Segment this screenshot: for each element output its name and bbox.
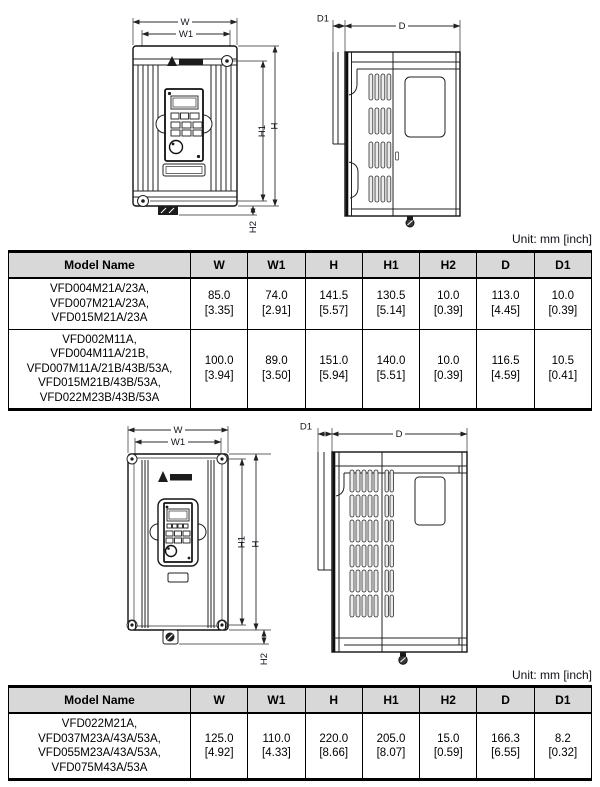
mounting-hole: [217, 454, 227, 464]
column-header-w: W: [191, 687, 248, 714]
column-header-model-name: Model Name: [9, 252, 191, 279]
unit-label: Unit: mm [inch]: [512, 668, 592, 682]
dimension-cell: 10.0[0.39]: [420, 329, 477, 410]
column-header-w1: W1: [248, 687, 305, 714]
dimension-cell: 220.0[8.66]: [305, 713, 362, 780]
column-header-model-name: Model Name: [9, 687, 191, 714]
large-frame-side-view-drawing: D1 D: [298, 420, 498, 675]
model-name-cell: VFD004M21A/23A, VFD007M21A/23A, VFD015M2…: [9, 278, 191, 329]
dimension-table-large-frames: Model Name W W1 H H1 H2 D D1 VFD022M21A,…: [8, 685, 592, 781]
terminal-cover: [168, 573, 188, 582]
model-line: VFD055M23A/43A/53A,: [11, 746, 188, 761]
h2-dimension: H2: [179, 206, 259, 233]
bottom-tab: [158, 206, 178, 215]
value-mm: 125.0: [193, 732, 245, 747]
keypad: [156, 89, 212, 161]
column-header-d: D: [477, 252, 534, 279]
value-inch: [3.94]: [193, 369, 245, 384]
small-frame-front-view-drawing: W W1: [126, 12, 286, 244]
value-inch: [4.92]: [193, 746, 245, 761]
manual-page: W W1: [0, 0, 600, 787]
h2-dimension-label: H2: [248, 221, 259, 233]
model-line: VFD075M43A/53A: [11, 761, 188, 776]
value-mm: 110.0: [250, 732, 302, 747]
h-dimension-label: H: [251, 540, 262, 547]
bottom-screw: [399, 652, 407, 664]
value-mm: 141.5: [308, 289, 360, 304]
d-dimension-label: D: [399, 21, 406, 32]
value-inch: [0.32]: [537, 746, 589, 761]
dimension-cell: 151.0[5.94]: [305, 329, 362, 410]
column-header-d1: D1: [534, 687, 591, 714]
table-row: VFD022M21A, VFD037M23A/43A/53A, VFD055M2…: [9, 713, 592, 780]
keypad-knob: [170, 141, 183, 154]
h2-dimension-label: H2: [259, 653, 270, 665]
h1-dimension-label: H1: [257, 125, 268, 137]
mounting-hole: [222, 56, 233, 67]
value-inch: [4.45]: [479, 304, 531, 319]
value-mm: 113.0: [479, 289, 531, 304]
column-header-d1: D1: [534, 252, 591, 279]
w1-dimension-label: W1: [171, 437, 185, 448]
table-header-row: Model Name W W1 H H1 H2 D D1: [9, 252, 592, 279]
value-inch: [3.50]: [250, 369, 302, 384]
value-inch: [5.94]: [308, 369, 360, 384]
drive-body: [133, 46, 237, 215]
value-inch: [0.39]: [537, 304, 589, 319]
dimension-cell: 10.5[0.41]: [534, 329, 591, 410]
value-mm: 130.5: [365, 289, 417, 304]
value-inch: [0.41]: [537, 369, 589, 384]
mounting-hole: [138, 196, 149, 207]
w-dimension-label: W: [174, 425, 183, 436]
column-header-h1: H1: [362, 687, 419, 714]
column-header-w: W: [191, 252, 248, 279]
d1-dimension: D1: [299, 421, 332, 452]
d-dimension-label: D: [396, 429, 403, 440]
drive-body: [318, 452, 467, 664]
model-line: VFD015M21B/43B/53A,: [11, 376, 188, 391]
value-inch: [5.14]: [365, 304, 417, 319]
model-line: VFD022M23B/43B/53A: [11, 391, 188, 406]
value-mm: 10.0: [537, 289, 589, 304]
column-header-h: H: [305, 252, 362, 279]
value-mm: 10.5: [537, 354, 589, 369]
value-inch: [8.07]: [365, 746, 417, 761]
dimension-cell: 110.0[4.33]: [248, 713, 305, 780]
d1-dimension-label: D1: [300, 422, 312, 433]
dimension-cell: 100.0[3.94]: [191, 329, 248, 410]
value-mm: 220.0: [308, 732, 360, 747]
value-mm: 15.0: [422, 732, 474, 747]
table-header-row: Model Name W W1 H H1 H2 D D1: [9, 687, 592, 714]
model-line: VFD007M11A/21B/43B/53A,: [11, 362, 188, 377]
column-header-h2: H2: [420, 252, 477, 279]
value-inch: [4.33]: [250, 746, 302, 761]
column-header-h1: H1: [362, 252, 419, 279]
model-line: VFD002M11A,: [11, 333, 188, 348]
dimension-table-small-frames: Model Name W W1 H H1 H2 D D1 VFD004M21A/…: [8, 250, 592, 411]
value-mm: 140.0: [365, 354, 417, 369]
w-dimension-label: W: [181, 17, 190, 28]
mounting-hole: [127, 454, 137, 464]
terminal-cover: [163, 164, 205, 176]
value-mm: 85.0: [193, 289, 245, 304]
dimension-cell: 205.0[8.07]: [362, 713, 419, 780]
model-line: VFD004M11A/21B,: [11, 347, 188, 362]
model-line: VFD015M21A/23A: [11, 311, 188, 326]
value-mm: 10.0: [422, 354, 474, 369]
dimension-cell: 125.0[4.92]: [191, 713, 248, 780]
dimension-cell: 10.0[0.39]: [534, 278, 591, 329]
h-dimension: H: [229, 454, 271, 630]
dimension-cell: 166.3[6.55]: [477, 713, 534, 780]
value-inch: [3.35]: [193, 304, 245, 319]
value-mm: 74.0: [250, 289, 302, 304]
value-mm: 100.0: [193, 354, 245, 369]
bottom-tab: [163, 630, 178, 644]
value-mm: 8.2: [537, 732, 589, 747]
dimension-cell: 74.0[2.91]: [248, 278, 305, 329]
value-inch: [5.51]: [365, 369, 417, 384]
model-line: VFD037M23A/43A/53A,: [11, 732, 188, 747]
value-inch: [0.59]: [422, 746, 474, 761]
value-inch: [2.91]: [250, 304, 302, 319]
model-line: VFD007M21A/23A,: [11, 297, 188, 312]
h2-dimension: H2: [179, 630, 270, 665]
h-dimension-label: H: [270, 122, 281, 129]
dimension-cell: 141.5[5.57]: [305, 278, 362, 329]
d1-dimension-label: D1: [317, 14, 329, 25]
table-row: VFD002M11A, VFD004M11A/21B, VFD007M11A/2…: [9, 329, 592, 410]
unit-label: Unit: mm [inch]: [512, 232, 592, 246]
d-dimension: D: [332, 428, 467, 452]
value-mm: 89.0: [250, 354, 302, 369]
d-dimension: D: [345, 20, 460, 52]
value-inch: [6.55]: [479, 746, 531, 761]
nameplate: [405, 77, 445, 137]
drive-body: [333, 52, 460, 227]
nameplate: [415, 477, 445, 525]
dimension-cell: 8.2[0.32]: [534, 713, 591, 780]
dimension-cell: 85.0[3.35]: [191, 278, 248, 329]
keypad-knob: [166, 546, 177, 557]
keypad: [150, 499, 206, 566]
d1-dimension: D1: [316, 13, 345, 52]
value-inch: [0.39]: [422, 369, 474, 384]
dimension-cell: 116.5[4.59]: [477, 329, 534, 410]
table-row: VFD004M21A/23A, VFD007M21A/23A, VFD015M2…: [9, 278, 592, 329]
dimension-cell: 89.0[3.50]: [248, 329, 305, 410]
value-inch: [8.66]: [308, 746, 360, 761]
model-name-cell: VFD002M11A, VFD004M11A/21B, VFD007M11A/2…: [9, 329, 191, 410]
dimension-cell: 130.5[5.14]: [362, 278, 419, 329]
value-inch: [5.57]: [308, 304, 360, 319]
dimension-cell: 15.0[0.59]: [420, 713, 477, 780]
h1-dimension: H1: [227, 459, 248, 625]
dimension-cell: 140.0[5.51]: [362, 329, 419, 410]
value-inch: [4.59]: [479, 369, 531, 384]
large-frame-front-view-drawing: W W1: [118, 422, 283, 674]
value-mm: 166.3: [479, 732, 531, 747]
small-frame-side-view-drawing: D1 D: [315, 12, 500, 244]
bottom-screw: [406, 216, 414, 227]
value-mm: 116.5: [479, 354, 531, 369]
value-mm: 10.0: [422, 289, 474, 304]
value-mm: 205.0: [365, 732, 417, 747]
column-header-h2: H2: [420, 687, 477, 714]
model-line: VFD022M21A,: [11, 717, 188, 732]
column-header-w1: W1: [248, 252, 305, 279]
w1-dimension-label: W1: [179, 29, 193, 40]
model-name-cell: VFD022M21A, VFD037M23A/43A/53A, VFD055M2…: [9, 713, 191, 780]
dimension-cell: 113.0[4.45]: [477, 278, 534, 329]
drive-body: [127, 454, 228, 644]
h1-dimension-label: H1: [237, 536, 248, 548]
value-mm: 151.0: [308, 354, 360, 369]
dimension-cell: 10.0[0.39]: [420, 278, 477, 329]
model-line: VFD004M21A/23A,: [11, 282, 188, 297]
column-header-h: H: [305, 687, 362, 714]
value-inch: [0.39]: [422, 304, 474, 319]
column-header-d: D: [477, 687, 534, 714]
